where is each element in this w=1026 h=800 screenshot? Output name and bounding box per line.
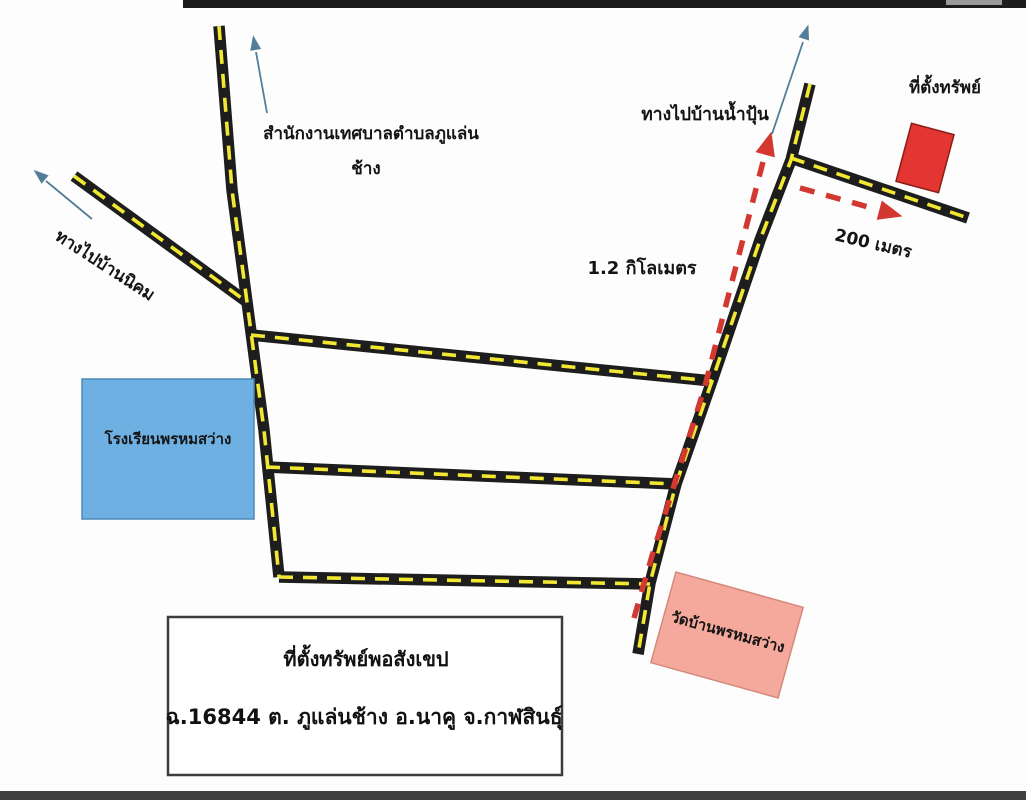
arrow-north-left-line	[256, 52, 267, 113]
scan-top-bar	[183, 0, 1026, 8]
red-route-main-arrowhead	[756, 129, 782, 157]
to-ban-nikhom-label: ทางไปบ้านนิคม	[51, 225, 159, 305]
red-route-branch-arrowhead	[877, 201, 905, 227]
road-main-right	[638, 84, 810, 654]
info-box-line2: ฉ.16844 ต. ภูแล่นช้าง อ.นาคู จ.กาฬสินธุ์	[165, 705, 562, 731]
to-ban-nampun-label: ทางไปบ้านน้ำปุ้น	[641, 101, 769, 125]
distance-200m-label: 200 เมตร	[833, 226, 915, 263]
office-label-line2: ช้าง	[351, 159, 380, 179]
info-box-line1: ที่ตั้งทรัพย์พอสังเขป	[283, 644, 448, 671]
school-rect	[82, 379, 254, 519]
distance-1-2km-label: 1.2 กิโลเมตร	[587, 257, 696, 279]
scan-bottom-bar	[0, 791, 1026, 800]
road-horizontal-middle-dashes	[266, 467, 676, 484]
scan-top-bar-light-patch	[946, 0, 1002, 5]
property-rect	[896, 123, 954, 192]
arrow-ban-nampun-head	[799, 23, 814, 41]
scanned-location-map: วัดบ้านพรหมสว่าง สำนักงานเทศบาลตำบลภูแล่…	[0, 0, 1026, 800]
red-route-branch-line	[800, 188, 872, 208]
property-site-label: ที่ตั้งทรัพย์	[909, 74, 981, 98]
road-to-ban-nikhom-dashes	[74, 176, 247, 302]
info-box: ที่ตั้งทรัพย์พอสังเขป ฉ.16844 ต. ภูแล่นช…	[165, 617, 562, 775]
road-network	[74, 26, 968, 654]
arrow-ban-nikhom-head	[30, 166, 49, 184]
school-label: โรงเรียนพรหมสว่าง	[104, 429, 232, 448]
arrow-north-left-head	[248, 34, 261, 51]
office-label-line1: สำนักงานเทศบาลตำบลภูแล่น	[263, 124, 479, 145]
info-box-border	[168, 617, 562, 775]
